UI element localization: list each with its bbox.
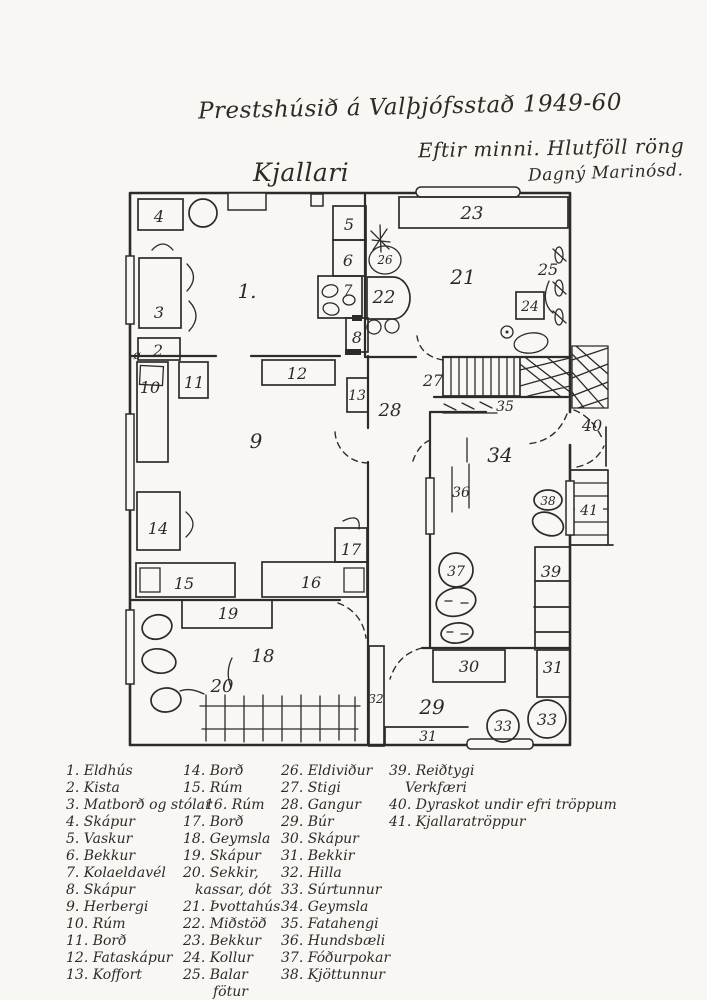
legend-item: 29. Búr xyxy=(281,814,390,831)
plan-label: 13 xyxy=(348,388,366,404)
plan-label: 19 xyxy=(218,604,238,623)
plan-label: 16 xyxy=(301,573,321,592)
plan-label: 37 xyxy=(447,564,465,580)
legend-item: 26. Eldiviður xyxy=(281,763,390,780)
plan-label: 5 xyxy=(344,215,354,234)
windows xyxy=(126,187,574,749)
plan-label: 33 xyxy=(494,719,512,735)
legend-column-2: 14. Borð 15. Rúm 16. Rúm 17. Borð 18. Ge… xyxy=(183,763,280,1000)
plan-label: 24 xyxy=(520,299,539,315)
plan-label: 32 xyxy=(368,692,383,706)
legend-item: 33. Súrtunnur xyxy=(281,882,390,899)
legend-item: Verkfæri xyxy=(389,780,617,797)
legend-item: 39. Reiðtygi xyxy=(389,763,617,780)
plan-label: 21 xyxy=(449,265,475,289)
legend-item: 34. Geymsla xyxy=(281,899,390,916)
plan-label: 27 xyxy=(422,371,444,390)
legend-item: 40. Dyraskot undir efri tröppum xyxy=(389,797,617,814)
plan-label: 6 xyxy=(343,251,353,270)
legend-item: 15. Rúm xyxy=(183,780,280,797)
plan-label: 35 xyxy=(496,399,514,415)
legend-item: 17. Borð xyxy=(183,814,280,831)
legend-column-4: 39. Reiðtygi Verkfæri 40. Dyraskot undir… xyxy=(389,763,617,831)
legend-column-3: 26. Eldiviður 27. Stigi 28. Gangur 29. B… xyxy=(281,763,390,984)
legend-item: 27. Stigi xyxy=(281,780,390,797)
plan-label: 9 xyxy=(250,429,263,453)
legend-item: 20. Sekkir, xyxy=(183,865,280,882)
plan-label: 29 xyxy=(418,695,445,719)
plan-label: 41 xyxy=(579,503,598,519)
plan-label: 12 xyxy=(287,364,307,383)
legend-item: 16. Rúm xyxy=(183,797,280,814)
legend-item: 37. Fóðurpokar xyxy=(281,950,390,967)
plan-label: 36 xyxy=(452,485,470,501)
legend-item: 32. Hilla xyxy=(281,865,390,882)
legend-item: 18. Geymsla xyxy=(183,831,280,848)
plan-label: 3 xyxy=(154,303,164,322)
legend-item: 31. Bekkir xyxy=(281,848,390,865)
plan-label: 18 xyxy=(252,646,275,667)
plan-label: 4 xyxy=(153,207,164,226)
legend-item: 23. Bekkur xyxy=(183,933,280,950)
legend-item: 38. Kjöttunnur xyxy=(281,967,390,984)
plan-label: 14 xyxy=(148,519,168,538)
scanned-floor-plan-page: Prestshúsið á Valþjófsstað 1949-60 Eftir… xyxy=(0,0,707,1000)
legend-item: 41. Kjallaratröppur xyxy=(389,814,617,831)
furniture xyxy=(136,197,570,746)
legend-item: 28. Gangur xyxy=(281,797,390,814)
plan-label: 40 xyxy=(581,416,602,435)
plan-label: 8 xyxy=(352,328,362,347)
plan-label: 31 xyxy=(543,658,563,677)
legend-item: 22. Miðstöð xyxy=(183,916,280,933)
plan-label: 23 xyxy=(460,203,484,224)
plan-label: 30 xyxy=(459,657,479,676)
plan-label: 17 xyxy=(341,540,362,559)
plan-label: 31 xyxy=(419,729,437,745)
plan-label: 33 xyxy=(537,710,557,729)
legend-item: fötur xyxy=(183,984,280,1000)
legend-item: 30. Skápur xyxy=(281,831,390,848)
legend-item: 19. Skápur xyxy=(183,848,280,865)
legend-item: kassar, dót xyxy=(183,882,280,899)
plan-label: 20 xyxy=(210,676,234,697)
plan-label: 7 xyxy=(344,283,353,299)
legend-item: 21. Þvottahús xyxy=(183,899,280,916)
plan-label: 15 xyxy=(174,574,194,593)
plan-label: 2 xyxy=(152,341,163,360)
plan-label: 10 xyxy=(140,378,160,397)
plan-label: 26 xyxy=(376,253,393,267)
staircase-27 xyxy=(443,358,520,396)
plan-label: 1. xyxy=(237,279,256,303)
legend-item: 14. Borð xyxy=(183,763,280,780)
hatch-under-stairs xyxy=(520,346,608,408)
plan-label: 11 xyxy=(184,373,204,392)
legend-item: 36. Hundsbæli xyxy=(281,933,390,950)
legend-item: 24. Kollur xyxy=(183,950,280,967)
plan-label: 39 xyxy=(541,562,561,581)
legend-item: 35. Fatahengi xyxy=(281,916,390,933)
plan-label: ø xyxy=(132,348,141,362)
plan-label: 38 xyxy=(540,494,556,508)
plan-label: 25 xyxy=(537,260,558,279)
plan-label: 28 xyxy=(378,400,402,421)
plan-label: 34 xyxy=(487,443,512,467)
legend-item: 25. Balar xyxy=(183,967,280,984)
plan-label: 22 xyxy=(372,287,396,308)
